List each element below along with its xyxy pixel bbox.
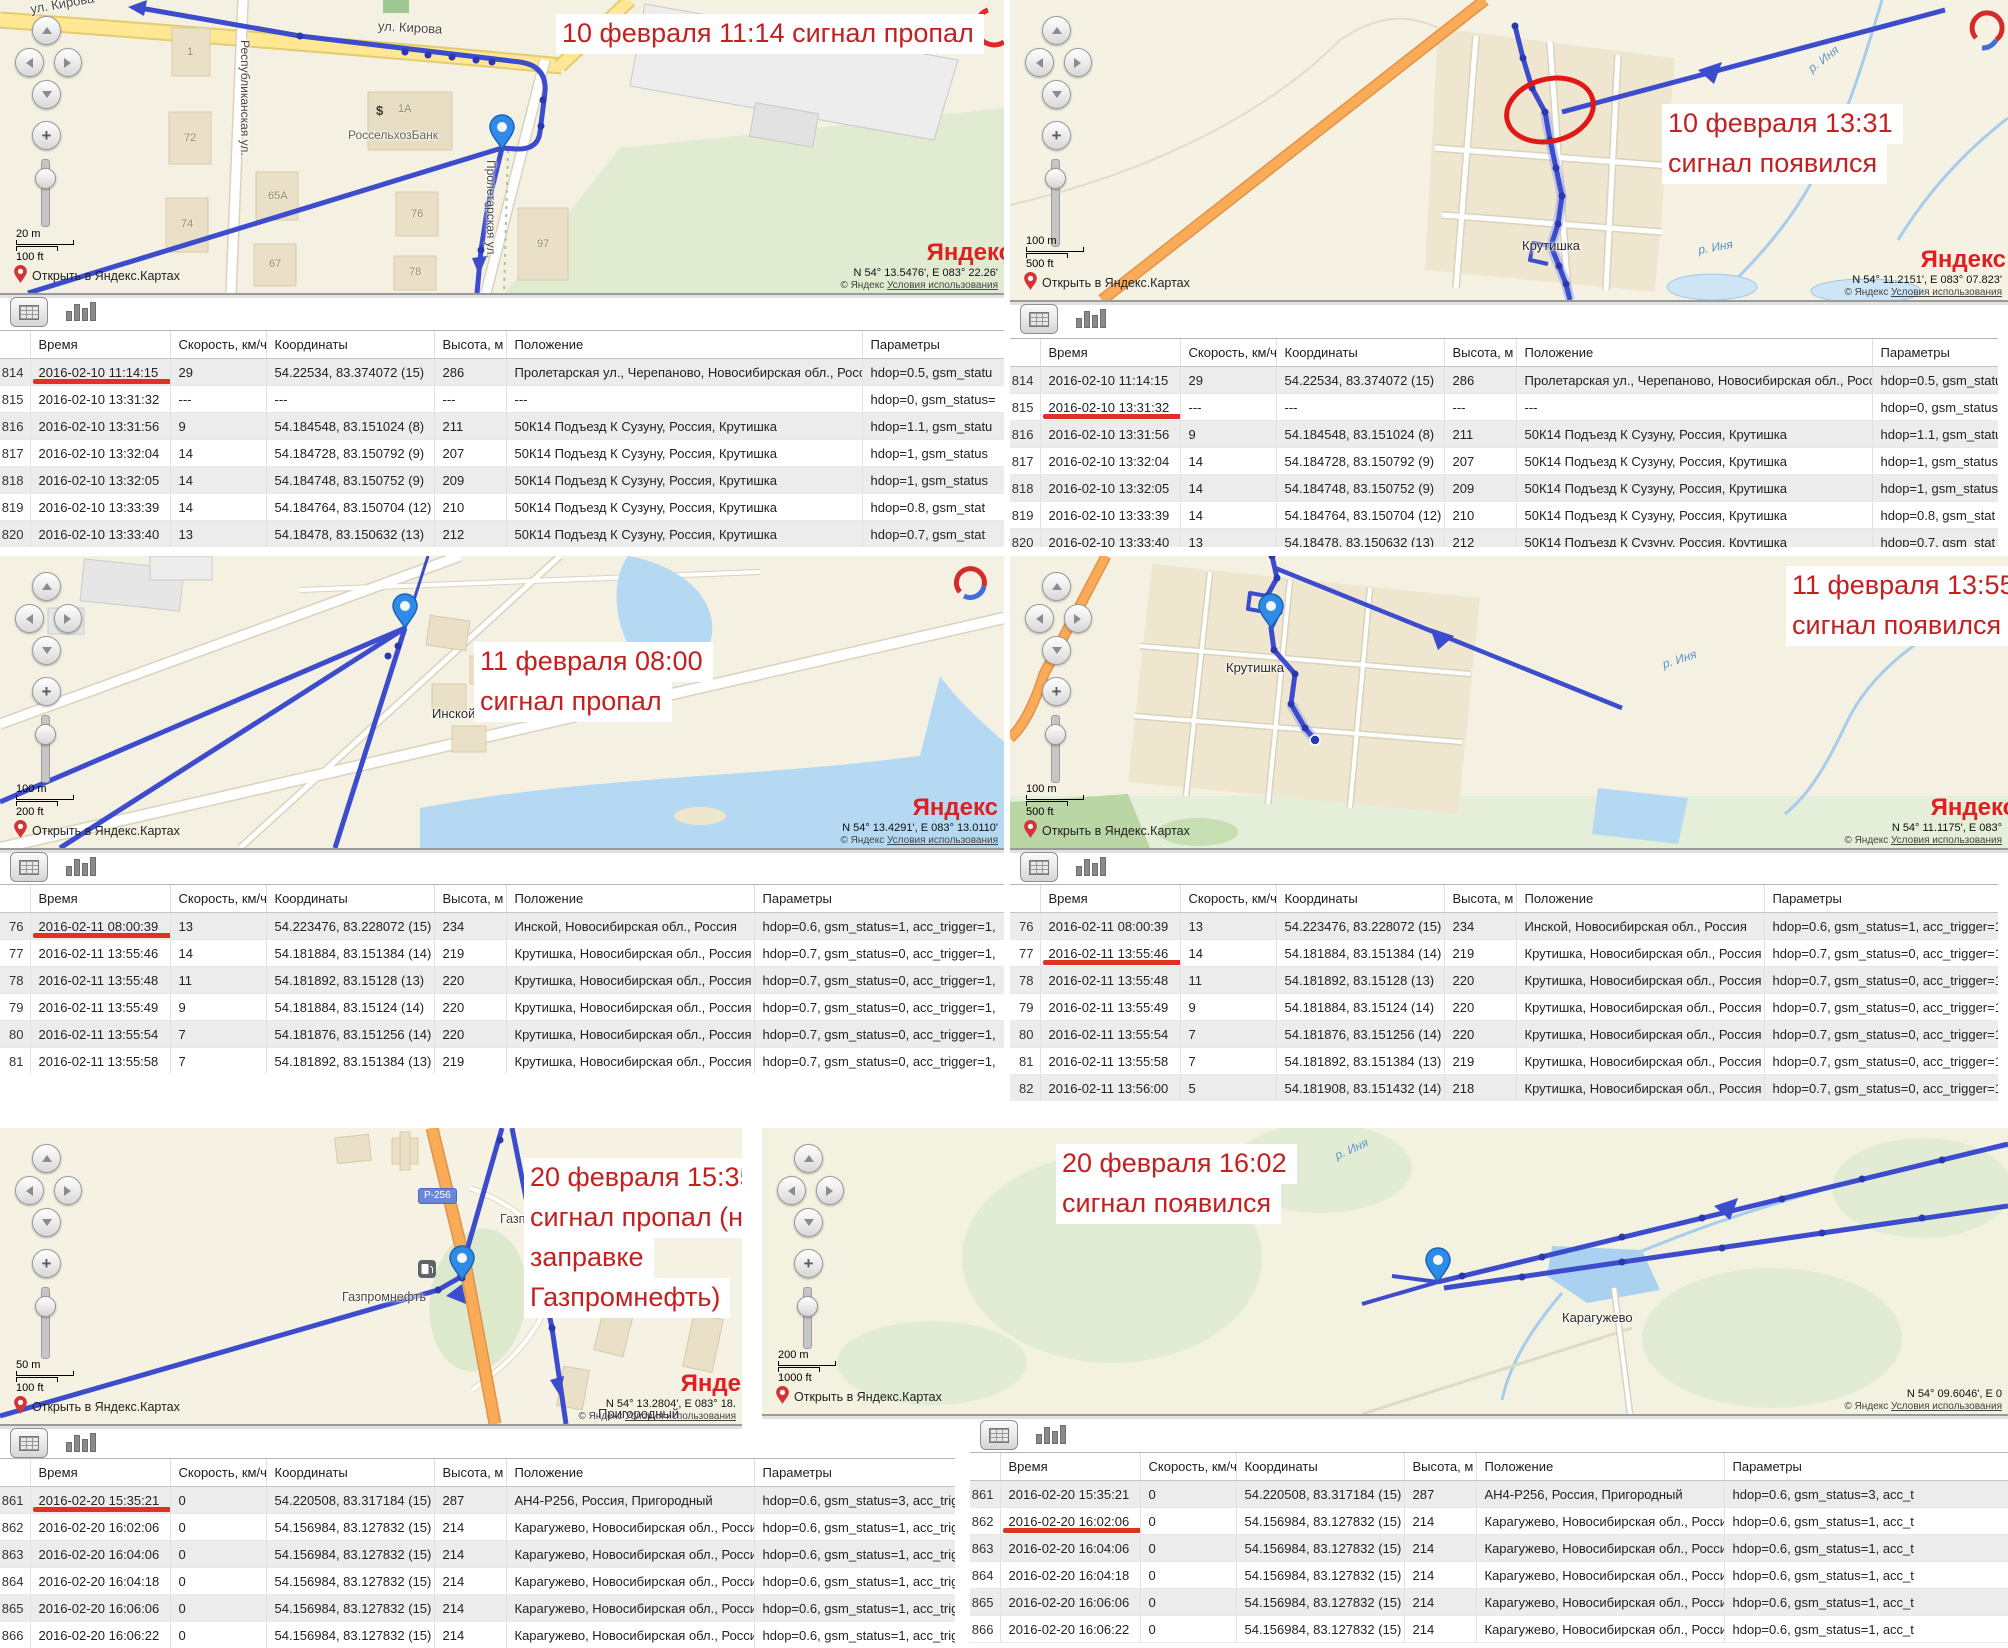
chevron-down-icon [42, 91, 52, 98]
yandex-logo[interactable]: Яндекс [1844, 246, 2002, 274]
house-number: 76 [411, 208, 423, 220]
data-cell: hdop=0.6, gsm_status=1, acc_t [1724, 1562, 2008, 1589]
data-cell: 50К14 Подъезд К Сузуну, Россия, Крутишка [1516, 529, 1872, 548]
data-cell: 287 [1404, 1481, 1476, 1508]
data-cell: 14 [170, 940, 266, 967]
map-scale: 100 m500 ft [1026, 783, 1084, 818]
data-cell: 220 [434, 967, 506, 994]
data-cell: 207 [434, 440, 506, 467]
column-header[interactable]: Время [30, 331, 170, 359]
table-row[interactable]: 782016-02-11 13:55:481154.181892, 83.151… [0, 967, 1004, 994]
data-cell: 50К14 Подъезд К Сузуну, Россия, Крутишка [506, 494, 862, 521]
chart-bar [1076, 318, 1082, 328]
open-in-yandex-link[interactable]: Открыть в Яндекс.Картах [14, 1396, 180, 1417]
column-header[interactable]: Параметры [862, 331, 1004, 359]
pan-right-button[interactable] [54, 604, 83, 633]
table-view-button[interactable] [10, 1428, 48, 1458]
time-cell: 2016-02-20 15:35:21 [30, 1487, 170, 1514]
panel-signal-lost-feb11: Инской +100 m200 ftОткрыть в Яндекс.Карт… [0, 556, 1004, 1073]
column-header[interactable]: Координаты [266, 885, 434, 913]
column-header[interactable]: Скорость, км/ч [170, 1459, 266, 1487]
data-cell: --- [1180, 394, 1276, 421]
chart-view-button[interactable] [66, 303, 96, 321]
column-header[interactable]: Параметры [1872, 339, 1998, 367]
data-cell: --- [434, 386, 506, 413]
column-header[interactable]: Время [1040, 885, 1180, 913]
time-cell: 2016-02-11 13:55:58 [30, 1048, 170, 1075]
data-cell: 54.181876, 83.151256 (14) [266, 1021, 434, 1048]
red-underline-annotation [33, 933, 171, 938]
column-header[interactable]: Время [1000, 1453, 1140, 1481]
table-row[interactable]: 8182016-02-10 13:32:051454.184748, 83.15… [1010, 475, 1998, 502]
table-row[interactable]: 8632016-02-20 16:04:06054.156984, 83.127… [970, 1535, 2008, 1562]
chevron-down-icon [1052, 647, 1062, 654]
signal-annotation: 20 февраля 16:02сигнал появился [1056, 1144, 1297, 1224]
data-cell: 9 [170, 994, 266, 1021]
row-number-cell: 865 [0, 1595, 30, 1622]
table-view-button[interactable] [10, 852, 48, 882]
pan-right-button[interactable] [54, 1176, 83, 1205]
column-header[interactable]: Положение [1476, 1453, 1724, 1481]
zoom-slider[interactable] [1051, 159, 1060, 247]
column-header[interactable]: Высота, м [434, 885, 506, 913]
time-cell: 2016-02-10 13:32:04 [1040, 448, 1180, 475]
time-cell: 2016-02-11 13:55:54 [1040, 1021, 1180, 1048]
table-row[interactable]: 8202016-02-10 13:33:401354.18478, 83.150… [1010, 529, 1998, 548]
data-cell: 234 [434, 913, 506, 940]
table-row[interactable]: 822016-02-11 13:56:00554.181908, 83.1514… [1010, 1075, 1998, 1102]
column-header[interactable]: Положение [506, 885, 754, 913]
row-number-cell: 863 [0, 1541, 30, 1568]
row-number-cell: 77 [1010, 940, 1040, 967]
open-in-yandex-link[interactable]: Открыть в Яндекс.Картах [1024, 272, 1190, 293]
map-canvas[interactable]: Р-256 Газпромнефть Газпромнефть Пригород… [0, 1128, 742, 1426]
data-cell: hdop=1, gsm_status [1872, 475, 1998, 502]
row-number-cell: 80 [0, 1021, 30, 1048]
time-cell: 2016-02-10 13:33:40 [30, 521, 170, 548]
data-cell: hdop=0.7, gsm_status=0, acc_trigger=1, [754, 1048, 1004, 1075]
table-grid-icon [19, 1436, 39, 1451]
table-row[interactable]: 8152016-02-10 13:31:32------------hdop=0… [0, 386, 1004, 413]
column-header[interactable]: Положение [506, 331, 862, 359]
open-in-yandex-link[interactable]: Открыть в Яндекс.Картах [1024, 820, 1190, 841]
data-cell: 54.156984, 83.127832 (15) [266, 1622, 434, 1648]
data-cell: hdop=0.6, gsm_status=1, acc_t [1724, 1589, 2008, 1616]
chart-bar [90, 1433, 96, 1452]
panel-signal-appeared-feb11: Крутишка р. Иня +100 m500 ftОткрыть в Ян… [1010, 556, 2008, 1100]
chart-view-button[interactable] [1076, 310, 1106, 328]
column-header[interactable]: Координаты [266, 331, 434, 359]
time-cell: 2016-02-10 11:14:15 [30, 359, 170, 386]
table-view-button[interactable] [10, 297, 48, 327]
data-cell: 0 [1140, 1535, 1236, 1562]
time-cell: 2016-02-11 13:55:58 [1040, 1048, 1180, 1075]
column-header[interactable]: Высота, м [1444, 885, 1516, 913]
annotation-line: 10 февраля 13:31 [1662, 104, 1903, 144]
column-header[interactable]: Координаты [1276, 339, 1444, 367]
row-number-cell: 862 [0, 1514, 30, 1541]
data-cell: 50К14 Подъезд К Сузуну, Россия, Крутишка [1516, 502, 1872, 529]
annotation-line: сигнал появился [1056, 1184, 1281, 1224]
track-data-table: ВремяСкорость, км/чКоординатыВысота, мПо… [970, 1453, 2008, 1643]
table-row[interactable]: 8142016-02-10 11:14:152954.22534, 83.374… [1010, 367, 1998, 394]
data-cell: hdop=1, gsm_status [862, 467, 1004, 494]
scale-feet: 500 ft [1026, 258, 1084, 270]
table-row[interactable]: 762016-02-11 08:00:391354.223476, 83.228… [0, 913, 1004, 940]
chevron-down-icon [42, 1219, 52, 1226]
data-cell: 212 [1444, 529, 1516, 548]
column-header[interactable]: Положение [1516, 885, 1764, 913]
row-number-cell: 861 [970, 1481, 1000, 1508]
data-cell: 13 [170, 913, 266, 940]
data-cell: 54.22534, 83.374072 (15) [1276, 367, 1444, 394]
data-cell: 219 [1444, 1048, 1516, 1075]
pan-down-button[interactable] [1042, 80, 1071, 109]
map-canvas[interactable]: ул. Кирова ул. Кирова Республиканская ул… [0, 0, 1004, 295]
pan-up-button[interactable] [794, 1144, 823, 1173]
data-cell: 54.220508, 83.317184 (15) [1236, 1481, 1404, 1508]
table-row[interactable]: 8172016-02-10 13:32:041454.184728, 83.15… [1010, 448, 1998, 475]
copyright-text: © Яндекс [840, 280, 887, 291]
place-label: Инской [432, 706, 475, 721]
table-row[interactable]: 802016-02-11 13:55:54754.181876, 83.1512… [0, 1021, 1004, 1048]
pan-left-button[interactable] [777, 1176, 806, 1205]
data-cell: 11 [170, 967, 266, 994]
open-in-yandex-link[interactable]: Открыть в Яндекс.Картах [14, 820, 180, 841]
pan-right-button[interactable] [816, 1176, 845, 1205]
red-underline-annotation [1043, 960, 1181, 965]
pan-left-button[interactable] [1025, 48, 1054, 77]
open-in-yandex-link[interactable]: Открыть в Яндекс.Картах [776, 1386, 942, 1407]
data-cell: Карагужево, Новосибирская обл., Россия [1476, 1535, 1724, 1562]
scale-meters: 20 m [16, 228, 74, 240]
table-row[interactable]: 762016-02-11 08:00:391354.223476, 83.228… [1010, 913, 1998, 940]
chart-view-button[interactable] [1036, 1426, 1066, 1444]
table-row[interactable]: 812016-02-11 13:55:58754.181892, 83.1513… [1010, 1048, 1998, 1075]
copyright-line: © Яндекс Условия использования [1844, 1401, 2002, 1413]
column-header[interactable]: Параметры [1724, 1453, 2008, 1481]
zoom-slider-handle[interactable] [35, 168, 56, 189]
map-coordinates: N 54° 09.6046', E 0 [1844, 1388, 2002, 1401]
zoom-in-button[interactable]: + [32, 121, 61, 150]
scale-meters: 50 m [16, 1359, 74, 1371]
data-cell: 50К14 Подъезд К Сузуну, Россия, Крутишка [1516, 475, 1872, 502]
column-header[interactable]: Скорость, км/ч [1140, 1453, 1236, 1481]
data-cell: 54.184748, 83.150752 (9) [1276, 475, 1444, 502]
data-cell: 214 [434, 1514, 506, 1541]
column-header-blank [1010, 339, 1040, 367]
column-header[interactable]: Высота, м [1404, 1453, 1476, 1481]
data-cell: Крутишка, Новосибирская обл., Россия [506, 940, 754, 967]
column-header[interactable]: Координаты [1276, 885, 1444, 913]
map-pin-icon [14, 265, 27, 286]
pan-left-button[interactable] [15, 1176, 44, 1205]
chart-bar [82, 308, 88, 321]
view-toolbar [0, 850, 96, 884]
data-cell: --- [170, 386, 266, 413]
data-cell: 209 [1444, 475, 1516, 502]
pan-down-button[interactable] [794, 1208, 823, 1237]
map-nav-controls: + [12, 572, 82, 783]
row-number-cell: 820 [1010, 529, 1040, 548]
table-row[interactable]: 772016-02-11 13:55:461454.181884, 83.151… [0, 940, 1004, 967]
pan-right-button[interactable] [1064, 604, 1093, 633]
pan-up-button[interactable] [1042, 572, 1071, 601]
time-cell: 2016-02-20 16:06:22 [1000, 1616, 1140, 1643]
chart-bar [66, 311, 72, 321]
pan-right-button[interactable] [54, 48, 83, 77]
column-header[interactable]: Скорость, км/ч [170, 331, 266, 359]
data-cell: 14 [170, 440, 266, 467]
data-cell: 214 [434, 1541, 506, 1568]
signal-annotation: 11 февраля 08:00сигнал пропал [474, 642, 713, 722]
open-in-yandex-link[interactable]: Открыть в Яндекс.Картах [14, 265, 180, 286]
column-header[interactable]: Скорость, км/ч [1180, 339, 1276, 367]
zoom-slider-handle[interactable] [1045, 724, 1066, 745]
row-number-cell: 864 [970, 1562, 1000, 1589]
data-cell: 54.18478, 83.150632 (13) [1276, 529, 1444, 548]
pan-up-button[interactable] [1042, 16, 1071, 45]
column-header[interactable]: Параметры [1764, 885, 1998, 913]
table-row[interactable]: 8192016-02-10 13:33:391454.184764, 83.15… [0, 494, 1004, 521]
pan-lr-row [15, 1176, 82, 1205]
pan-left-button[interactable] [1025, 604, 1054, 633]
zoom-slider[interactable] [41, 715, 50, 783]
pan-up-button[interactable] [32, 1144, 61, 1173]
pan-down-button[interactable] [32, 1208, 61, 1237]
table-row[interactable]: 792016-02-11 13:55:49954.181884, 83.1512… [1010, 994, 1998, 1021]
chart-bar [1060, 1425, 1066, 1444]
column-header[interactable]: Координаты [266, 1459, 434, 1487]
column-header[interactable]: Время [30, 1459, 170, 1487]
map-canvas[interactable]: Инской +100 m200 ftОткрыть в Яндекс.Карт… [0, 556, 1004, 850]
data-cell: Крутишка, Новосибирская обл., Россия [1516, 994, 1764, 1021]
table-row[interactable]: 812016-02-11 13:55:58754.181892, 83.1513… [0, 1048, 1004, 1075]
time-cell: 2016-02-10 13:33:39 [30, 494, 170, 521]
column-header[interactable]: Высота, м [434, 1459, 506, 1487]
pan-up-button[interactable] [32, 572, 61, 601]
data-cell: hdop=0.7, gsm_status=0, acc_trigger=1, [754, 940, 1004, 967]
column-header[interactable]: Положение [1516, 339, 1872, 367]
table-header-row: ВремяСкорость, км/чКоординатыВысота, мПо… [970, 1453, 2008, 1481]
column-header[interactable]: Время [30, 885, 170, 913]
column-header[interactable]: Параметры [754, 885, 1004, 913]
zoom-slider-handle[interactable] [797, 1296, 818, 1317]
poi-label: Газпромнефть [342, 1290, 426, 1304]
row-number-cell: 815 [1010, 394, 1040, 421]
table-row[interactable]: 8152016-02-10 13:31:32------------hdop=0… [1010, 394, 1998, 421]
zoom-in-button[interactable]: + [1042, 121, 1071, 150]
data-cell: hdop=0.7, gsm_status=0, acc_trigger=1, [1764, 1048, 1998, 1075]
table-view-button[interactable] [1020, 304, 1058, 334]
zoom-in-button[interactable]: + [1042, 677, 1071, 706]
zoom-slider[interactable] [41, 159, 50, 227]
table-row[interactable]: 8192016-02-10 13:33:391454.184764, 83.15… [1010, 502, 1998, 529]
map-canvas[interactable]: Карагужево р. Иня +200 m1000 ftОткрыть в… [762, 1128, 2008, 1416]
table-row[interactable]: 8612016-02-20 15:35:21054.220508, 83.317… [970, 1481, 2008, 1508]
column-header[interactable]: Скорость, км/ч [1180, 885, 1276, 913]
data-cell: 14 [170, 467, 266, 494]
chevron-up-icon [804, 1155, 814, 1162]
chart-bar [74, 859, 80, 876]
annotation-line: 10 февраля 11:14 сигнал пропал [556, 14, 984, 54]
chart-bar [1036, 1434, 1042, 1444]
pan-down-button[interactable] [32, 80, 61, 109]
zoom-slider[interactable] [1051, 715, 1060, 783]
chevron-right-icon [826, 1186, 833, 1196]
zoom-slider[interactable] [803, 1287, 812, 1349]
data-cell: 212 [434, 521, 506, 548]
pan-right-button[interactable] [1064, 48, 1093, 77]
open-link-label: Открыть в Яндекс.Картах [32, 824, 180, 838]
zoom-slider-handle[interactable] [35, 724, 56, 745]
data-cell: 211 [434, 413, 506, 440]
chart-view-button[interactable] [66, 858, 96, 876]
chart-view-button[interactable] [1076, 858, 1106, 876]
yandex-logo[interactable]: Яндекс [1844, 794, 2002, 822]
column-header[interactable]: Высота, м [1444, 339, 1516, 367]
map-nav-controls: + [774, 1144, 844, 1349]
column-header[interactable]: Высота, м [434, 331, 506, 359]
pan-up-button[interactable] [32, 16, 61, 45]
map-canvas[interactable]: Крутишка р. Иня р. Иня +100 m500 ftОткры… [1010, 0, 2008, 302]
scale-bar [1026, 247, 1084, 252]
terms-link[interactable]: Условия использования [625, 1411, 736, 1422]
data-cell: 54.184548, 83.151024 (8) [1276, 421, 1444, 448]
red-underline-annotation [33, 1507, 171, 1512]
chevron-up-icon [42, 1155, 52, 1162]
data-cell: Карагужево, Новосибирская обл., Россия [506, 1568, 754, 1595]
row-number-cell: 77 [0, 940, 30, 967]
column-header[interactable]: Время [1040, 339, 1180, 367]
yandex-logo[interactable]: Яндекс [840, 239, 998, 267]
place-label: Крутишка [1226, 660, 1284, 675]
house-number: 1 [187, 46, 193, 58]
red-underline-annotation [1003, 1528, 1141, 1533]
pan-left-button[interactable] [15, 48, 44, 77]
map-coordinates: N 54° 13.5476', E 083° 22.26' [840, 267, 998, 280]
zoom-slider[interactable] [41, 1287, 50, 1359]
row-number-cell: 864 [0, 1568, 30, 1595]
yandex-logo[interactable]: Яндекс [840, 794, 998, 822]
column-header[interactable]: Положение [506, 1459, 754, 1487]
table-view-button[interactable] [980, 1420, 1018, 1450]
data-cell: 14 [170, 494, 266, 521]
zoom-in-button[interactable]: + [32, 1249, 61, 1278]
data-cell: 29 [1180, 367, 1276, 394]
copyright-line: © Яндекс Условия использования [1844, 287, 2002, 299]
table-row[interactable]: 8652016-02-20 16:06:06054.156984, 83.127… [970, 1589, 2008, 1616]
pan-down-button[interactable] [1042, 636, 1071, 665]
yandex-logo[interactable]: Яндекс [578, 1370, 736, 1398]
data-cell: hdop=0.8, gsm_stat [1872, 502, 1998, 529]
data-cell: 7 [1180, 1021, 1276, 1048]
tracker-report-canvas: ул. Кирова ул. Кирова Республиканская ул… [0, 0, 2008, 1648]
table-row[interactable]: 8162016-02-10 13:31:56954.184548, 83.151… [1010, 421, 1998, 448]
data-cell: hdop=0.6, gsm_status=1, acc_t [1724, 1616, 2008, 1643]
time-cell: 2016-02-20 16:04:18 [30, 1568, 170, 1595]
chart-view-button[interactable] [66, 1434, 96, 1452]
map-nav-controls: + [1022, 16, 1092, 247]
table-row[interactable]: 8172016-02-10 13:32:041454.184728, 83.15… [0, 440, 1004, 467]
data-cell: hdop=0.6, gsm_status=1, acc_t [1724, 1508, 2008, 1535]
chart-bar [1092, 315, 1098, 328]
view-toolbar [0, 1426, 96, 1460]
terms-link[interactable]: Условия использования [1891, 1401, 2002, 1412]
table-row[interactable]: 8182016-02-10 13:32:051454.184748, 83.15… [0, 467, 1004, 494]
data-cell: 14 [1180, 475, 1276, 502]
table-row[interactable]: 792016-02-11 13:55:49954.181884, 83.1512… [0, 994, 1004, 1021]
row-number-cell: 861 [0, 1487, 30, 1514]
data-cell: 14 [1180, 502, 1276, 529]
data-cell: Крутишка, Новосибирская обл., Россия [1516, 967, 1764, 994]
row-number-cell: 863 [970, 1535, 1000, 1562]
row-number-cell: 816 [1010, 421, 1040, 448]
open-link-label: Открыть в Яндекс.Картах [1042, 824, 1190, 838]
data-cell: Крутишка, Новосибирская обл., Россия [1516, 1021, 1764, 1048]
data-cell: 54.156984, 83.127832 (15) [266, 1568, 434, 1595]
data-cell: 7 [1180, 1048, 1276, 1075]
chart-bar [1100, 857, 1106, 876]
data-cell: 54.156984, 83.127832 (15) [1236, 1616, 1404, 1643]
table-row[interactable]: 772016-02-11 13:55:461454.181884, 83.151… [1010, 940, 1998, 967]
data-cell: --- [1276, 394, 1444, 421]
map-canvas[interactable]: Крутишка р. Иня +100 m500 ftОткрыть в Ян… [1010, 556, 2008, 850]
bank-icon: $ [376, 103, 383, 118]
terms-link[interactable]: Условия использования [887, 280, 998, 291]
zoom-in-button[interactable]: + [32, 677, 61, 706]
row-number-cell: 818 [0, 467, 30, 494]
table-row[interactable]: 8642016-02-20 16:04:18054.156984, 83.127… [970, 1562, 2008, 1589]
table-row[interactable]: 8622016-02-20 16:02:06054.156984, 83.127… [970, 1508, 2008, 1535]
terms-link[interactable]: Условия использования [1891, 835, 2002, 846]
table-row[interactable]: 782016-02-11 13:55:481154.181892, 83.151… [1010, 967, 1998, 994]
chart-bar [66, 866, 72, 876]
pan-left-button[interactable] [15, 604, 44, 633]
copyright-line: © Яндекс Условия использования [578, 1411, 736, 1423]
table-view-button[interactable] [1020, 852, 1058, 882]
terms-link[interactable]: Условия использования [1891, 287, 2002, 298]
copyright-text: © Яндекс [1844, 835, 1891, 846]
chevron-left-icon [26, 614, 33, 624]
column-header[interactable]: Координаты [1236, 1453, 1404, 1481]
table-row[interactable]: 8662016-02-20 16:06:22054.156984, 83.127… [970, 1616, 2008, 1643]
zoom-in-button[interactable]: + [794, 1249, 823, 1278]
chevron-left-icon [26, 58, 33, 68]
data-cell: --- [1516, 394, 1872, 421]
data-cell: 14 [1180, 940, 1276, 967]
table-grid-icon [989, 1428, 1009, 1443]
time-cell: 2016-02-11 08:00:39 [1040, 913, 1180, 940]
time-cell: 2016-02-10 13:32:05 [1040, 475, 1180, 502]
pan-lr-row [15, 48, 82, 77]
track-table: ВремяСкорость, км/чКоординатыВысота, мПо… [0, 884, 1004, 1074]
chevron-down-icon [1052, 91, 1062, 98]
table-row[interactable]: 802016-02-11 13:55:54754.181876, 83.1512… [1010, 1021, 1998, 1048]
table-row[interactable]: 8142016-02-10 11:14:152954.22534, 83.374… [0, 359, 1004, 386]
chart-bar [1100, 309, 1106, 328]
table-row[interactable]: 8202016-02-10 13:33:401354.18478, 83.150… [0, 521, 1004, 548]
zoom-slider-handle[interactable] [1045, 168, 1066, 189]
row-number-cell: 818 [1010, 475, 1040, 502]
time-cell: 2016-02-10 13:32:04 [30, 440, 170, 467]
terms-link[interactable]: Условия использования [887, 835, 998, 846]
house-number: 97 [537, 238, 549, 250]
zoom-slider-handle[interactable] [35, 1296, 56, 1317]
column-header[interactable]: Скорость, км/ч [170, 885, 266, 913]
table-row[interactable]: 8162016-02-10 13:31:56954.184548, 83.151… [0, 413, 1004, 440]
pan-down-button[interactable] [32, 636, 61, 665]
